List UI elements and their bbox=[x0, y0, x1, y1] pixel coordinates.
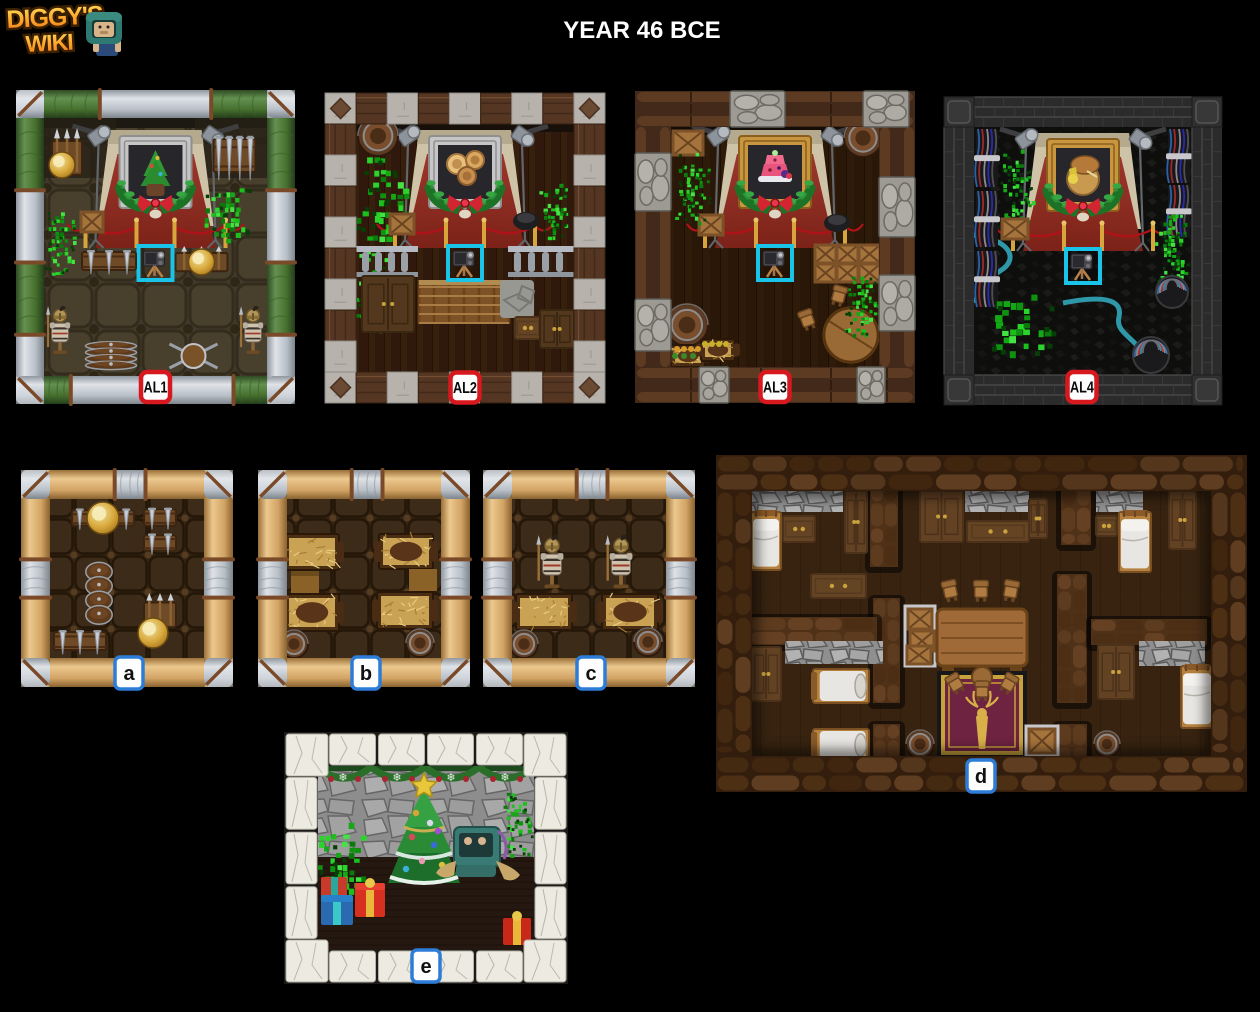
svg-text:c: c bbox=[585, 663, 596, 685]
svg-text:e: e bbox=[420, 956, 431, 978]
svg-text:a: a bbox=[123, 663, 135, 685]
svg-text:❄: ❄ bbox=[446, 772, 455, 784]
svg-text:YEAR 46 BCE: YEAR 46 BCE bbox=[563, 17, 720, 44]
svg-text:AL1: AL1 bbox=[144, 380, 168, 397]
svg-text:WIKI: WIKI bbox=[25, 29, 73, 57]
svg-text:d: d bbox=[975, 766, 987, 788]
svg-text:❄: ❄ bbox=[392, 772, 401, 784]
svg-text:AL3: AL3 bbox=[763, 380, 787, 397]
svg-text:AL4: AL4 bbox=[1070, 380, 1094, 397]
svg-text:❄: ❄ bbox=[500, 772, 509, 784]
svg-text:b: b bbox=[360, 663, 372, 685]
svg-text:AL2: AL2 bbox=[453, 380, 477, 397]
svg-text:❄: ❄ bbox=[338, 772, 347, 784]
